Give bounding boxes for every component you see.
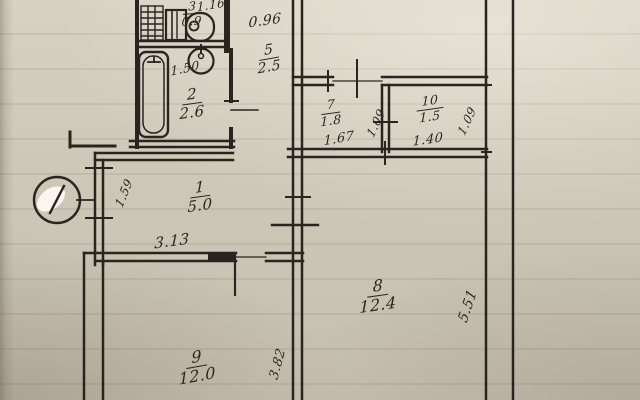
floor-plan-drawing — [0, 0, 640, 400]
vent-grid-icon — [141, 6, 163, 40]
room10-label: 10 1.5 — [417, 93, 444, 126]
wall-room9-left — [84, 253, 103, 400]
bathtub-icon — [139, 52, 168, 137]
wall-room9-top — [95, 252, 303, 295]
wall-room8-top — [288, 142, 487, 164]
room8-label: 8 12.4 — [359, 275, 396, 316]
room1-area: 5.0 — [187, 196, 212, 216]
room7-label: 7 1.8 — [320, 97, 341, 129]
entry-circle-mark-icon — [32, 177, 80, 223]
room5-label: 5 2.5 — [257, 41, 282, 77]
floor-plan-photo: 3 0.9 5 2.5 2 2.6 7 1.8 10 1.5 1 5.0 8 1… — [0, 0, 640, 400]
room10-area: 1.5 — [419, 108, 440, 125]
room3-area: 0.9 — [181, 14, 202, 29]
room9-label: 9 12.0 — [178, 346, 216, 388]
wall-exterior-right — [482, 0, 513, 400]
room2-label: 2 2.6 — [179, 85, 204, 122]
room2-area: 2.6 — [179, 103, 204, 123]
room1-label: 1 5.0 — [187, 178, 212, 215]
room7-area: 1.8 — [320, 112, 341, 129]
